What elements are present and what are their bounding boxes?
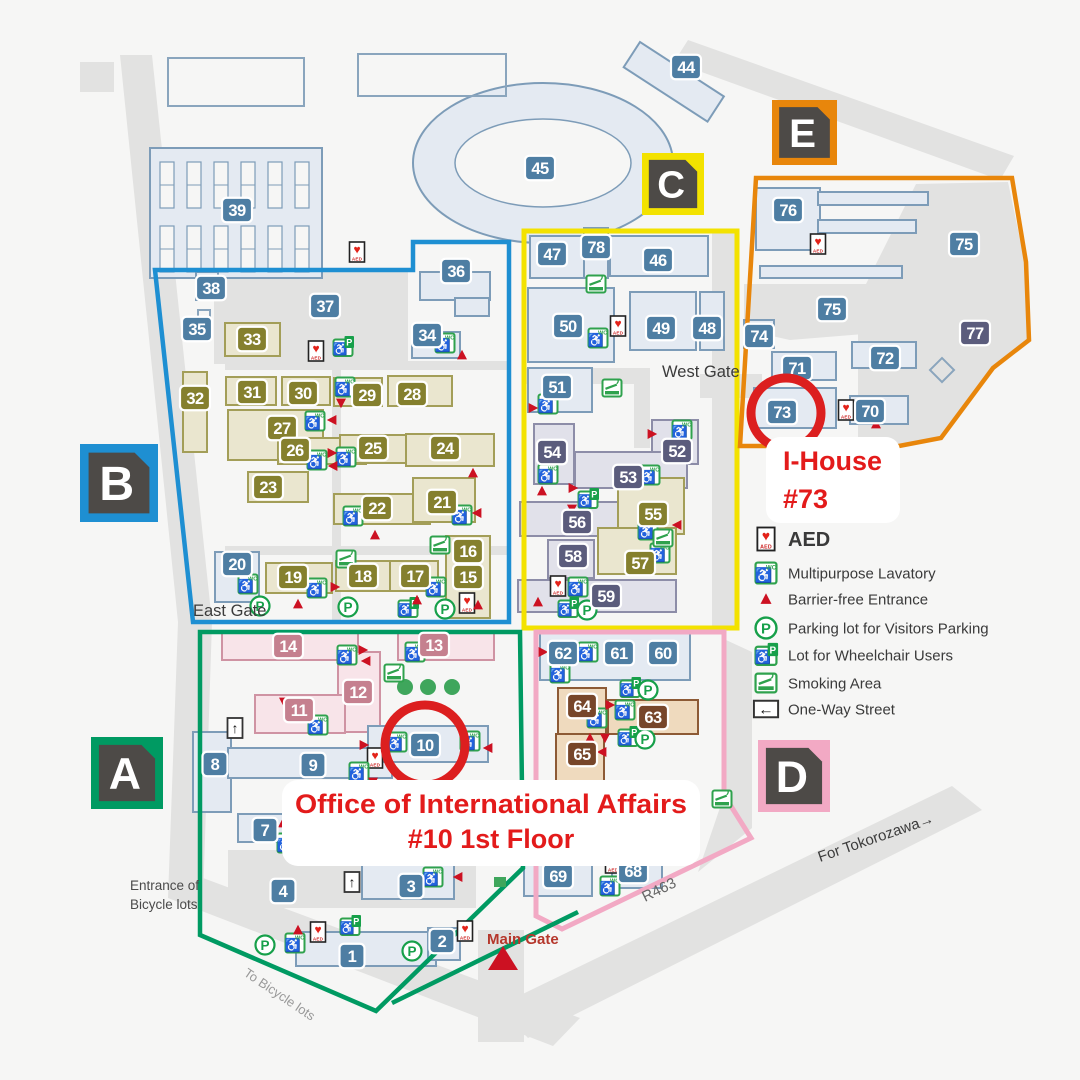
wc-text: WC [682, 423, 691, 429]
badge-number: 78 [587, 239, 605, 257]
badge-number: 50 [559, 318, 577, 336]
smoking-area-icon [385, 664, 404, 681]
badge-number: 56 [568, 514, 586, 532]
aed-heart: ♥ [554, 577, 561, 591]
badge-number: 31 [243, 384, 261, 402]
building-badge-47: 47 [537, 242, 567, 267]
smoke-bar [589, 287, 603, 290]
aed-icon: ♥AED [368, 748, 383, 768]
aed-heart: ♥ [312, 342, 319, 356]
wc-text: WC [433, 870, 442, 876]
zone-badge-b: B [80, 444, 158, 522]
building-badge-63: 63 [638, 705, 668, 730]
badge-number: 15 [459, 569, 477, 587]
building [818, 220, 916, 233]
visitors-parking-icon: P [636, 730, 655, 749]
smoking-area-icon [756, 673, 777, 692]
badge-number: 73 [773, 404, 791, 422]
smoke-bar [387, 676, 401, 679]
zone-badge-e: E [772, 100, 837, 165]
building-badge-44: 44 [671, 55, 701, 80]
wc-text: WC [353, 509, 362, 515]
building-badge-16: 16 [453, 539, 483, 564]
building-badge-49: 49 [646, 316, 676, 341]
building-badge-22: 22 [362, 496, 392, 521]
multipurpose-lavatory-icon: ♿WC [305, 412, 325, 431]
badge-number: 22 [368, 500, 386, 518]
building-badge-30: 30 [288, 381, 318, 406]
aed-text: AED [352, 256, 363, 261]
wheelchair-parking-icon: ♿P [754, 643, 778, 665]
badge-number: 17 [406, 568, 424, 586]
building-badge-77: 77 [960, 321, 990, 346]
aed-icon: ♥AED [611, 316, 626, 336]
wc-text: WC [548, 467, 557, 473]
aed-icon: ♥AED [309, 341, 324, 361]
badge-number: 11 [291, 702, 308, 720]
one-way-street-icon: ↑ [228, 718, 243, 738]
aed-text: AED [613, 330, 624, 335]
building-badge-78: 78 [581, 235, 611, 260]
multipurpose-lavatory-icon: ♿WC [578, 643, 598, 662]
building-badge-15: 15 [453, 565, 483, 590]
building-badge-19: 19 [278, 565, 308, 590]
badge-number: 59 [597, 588, 615, 606]
legend-label: One-Way Street [788, 701, 896, 718]
badge-number: 25 [364, 440, 382, 458]
building-badge-21: 21 [427, 490, 457, 515]
badge-number: 58 [564, 548, 582, 566]
multipurpose-lavatory-icon: ♿WC [600, 877, 620, 896]
zone-badge-letter: D [776, 753, 808, 802]
legend-label: Parking lot for Visitors Parking [788, 620, 989, 637]
building-badge-14: 14 [273, 634, 303, 659]
badge-number: 48 [698, 320, 716, 338]
badge-number: 3 [407, 878, 416, 896]
p-letter: P [643, 683, 652, 698]
multipurpose-lavatory-icon: ♿WC [285, 934, 305, 953]
badge-number: 75 [823, 301, 841, 319]
building-badge-20: 20 [222, 552, 252, 577]
building-badge-18: 18 [348, 564, 378, 589]
aed-text: AED [462, 607, 473, 612]
wheelchair-parking-icon: ♿P [578, 488, 599, 508]
building-badge-28: 28 [397, 382, 427, 407]
aed-text: AED [313, 936, 324, 941]
building-badge-46: 46 [643, 248, 673, 273]
multipurpose-lavatory-icon: ♿WC [307, 579, 327, 598]
smoke-bar [758, 686, 773, 690]
smoking-area-icon [431, 536, 450, 553]
building-badge-17: 17 [400, 564, 430, 589]
aed-text: AED [760, 545, 772, 551]
multipurpose-lavatory-icon: ♿WC [423, 868, 443, 887]
oneway-arrow: ↑ [232, 720, 239, 736]
aed-heart: ♥ [314, 923, 321, 937]
wc-text: WC [766, 565, 777, 571]
wc-text: WC [470, 734, 479, 740]
multipurpose-lavatory-icon: ♿WC [755, 563, 777, 585]
building-badge-23: 23 [253, 475, 283, 500]
badge-number: 75 [955, 236, 973, 254]
badge-number: 34 [418, 327, 437, 345]
building-badge-59: 59 [591, 584, 621, 609]
badge-number: 63 [644, 709, 662, 727]
multipurpose-lavatory-icon: ♿WC [349, 763, 369, 782]
annotation-text: #10 1st Floor [408, 824, 575, 854]
building-badge-64: 64 [567, 694, 597, 719]
multipurpose-lavatory-icon: ♿WC [568, 578, 588, 597]
zone-badge-letter: E [789, 111, 816, 156]
building-badge-11: 11 [284, 698, 314, 723]
badge-number: 29 [358, 387, 376, 405]
building-badge-65: 65 [567, 742, 597, 767]
wc-text: WC [598, 331, 607, 337]
building-badge-7: 7 [253, 818, 278, 843]
pw-p: P [353, 916, 359, 926]
badge-number: 1 [348, 948, 357, 966]
badge-number: 21 [433, 494, 451, 512]
badge-number: 44 [677, 59, 696, 77]
badge-number: 57 [631, 555, 649, 573]
badge-number: 38 [202, 280, 220, 298]
smoke-bar [605, 391, 619, 394]
pw-p: P [591, 489, 597, 499]
visitors-parking-icon: P [436, 600, 455, 619]
wheelchair-parking-icon: ♿P [340, 915, 361, 935]
badge-number: 10 [416, 737, 434, 755]
aed-text: AED [311, 355, 322, 360]
aed-heart: ♥ [461, 922, 468, 936]
pw-p: P [571, 598, 577, 608]
legend-label: AED [788, 529, 830, 551]
badge-number: 76 [779, 202, 797, 220]
badge-number: 69 [549, 868, 567, 886]
aed-text: AED [370, 762, 381, 767]
badge-number: 46 [649, 252, 667, 270]
map-label: Main Gate [487, 931, 559, 948]
badge-number: 30 [294, 385, 312, 403]
aed-text: AED [553, 590, 564, 595]
building-badge-57: 57 [625, 551, 655, 576]
aed-text: AED [813, 248, 824, 253]
one-way-street-icon: ↑ [345, 872, 360, 892]
aed-text: AED [460, 935, 471, 940]
building-badge-39: 39 [222, 198, 252, 223]
badge-number: 45 [531, 160, 549, 178]
one-way-street-icon: ← [754, 701, 778, 719]
wheelchair-parking-icon: ♿P [620, 677, 641, 697]
wc-text: WC [560, 666, 569, 672]
badge-number: 60 [654, 645, 672, 663]
badge-number: 20 [228, 556, 246, 574]
wc-text: WC [578, 580, 587, 586]
campus-map: ♥AED♥AED♥AED♥AED♥AED♥AED♥AED♥AED♥AED♥AED… [0, 0, 1080, 1080]
aed-heart: ♥ [463, 594, 470, 608]
wc-text: WC [317, 581, 326, 587]
multipurpose-lavatory-icon: ♿WC [672, 421, 692, 440]
badge-number: 28 [403, 386, 421, 404]
building-badge-62: 62 [548, 641, 578, 666]
multipurpose-lavatory-icon: ♿WC [337, 646, 357, 665]
badge-number: 74 [750, 328, 769, 346]
badge-number: 4 [279, 883, 289, 901]
oneway-arrow: ← [758, 701, 773, 718]
building-badge-37: 37 [310, 294, 340, 319]
badge-number: 24 [436, 440, 455, 458]
campus-map-page: ♥AED♥AED♥AED♥AED♥AED♥AED♥AED♥AED♥AED♥AED… [0, 0, 1080, 1080]
badge-number: 77 [966, 325, 984, 343]
map-label: Bicycle lots [130, 897, 198, 912]
building-badge-54: 54 [537, 440, 567, 465]
zone-badge-letter: B [99, 457, 134, 511]
building-badge-75: 75 [817, 297, 847, 322]
badge-number: 62 [554, 645, 572, 663]
badge-number: 36 [447, 263, 465, 281]
building-badge-52: 52 [662, 439, 692, 464]
legend-label: Smoking Area [788, 675, 882, 692]
building-badge-10: 10 [410, 733, 440, 758]
building-badge-45: 45 [525, 156, 555, 181]
wc-text: WC [295, 936, 304, 942]
annotation-text: #73 [783, 484, 828, 514]
building-badge-51: 51 [542, 375, 572, 400]
building-badge-61: 61 [604, 641, 634, 666]
aed-icon: ♥AED [350, 242, 365, 262]
badge-number: 37 [316, 298, 334, 316]
building-badge-69: 69 [543, 864, 573, 889]
aed-heart: ♥ [614, 317, 621, 331]
building-badge-4: 4 [271, 879, 296, 904]
building-badge-34: 34 [412, 323, 442, 348]
badge-number: 14 [279, 638, 298, 656]
badge-number: 27 [273, 420, 291, 438]
wc-text: WC [436, 580, 445, 586]
building-badge-73: 73 [767, 400, 797, 425]
badge-number: 12 [349, 684, 367, 702]
building-badge-8: 8 [203, 752, 228, 777]
building-badge-56: 56 [562, 510, 592, 535]
badge-number: 51 [548, 379, 566, 397]
multipurpose-lavatory-icon: ♿WC [588, 329, 608, 348]
badge-number: 54 [543, 444, 562, 462]
wc-text: WC [317, 453, 326, 459]
building-badge-27: 27 [267, 416, 297, 441]
badge-number: 7 [261, 822, 270, 840]
building [455, 298, 489, 316]
wc-text: WC [318, 718, 327, 724]
aed-icon: ♥AED [460, 593, 475, 613]
multipurpose-lavatory-icon: ♿WC [615, 701, 635, 720]
building-badge-26: 26 [280, 438, 310, 463]
multipurpose-lavatory-icon: ♿WC [336, 448, 356, 467]
building-badge-1: 1 [340, 944, 365, 969]
badge-number: 53 [619, 469, 637, 487]
building-badge-25: 25 [358, 436, 388, 461]
badge-number: 72 [876, 350, 894, 368]
badge-number: 64 [573, 698, 592, 716]
p-letter: P [440, 602, 449, 617]
zone-badge-letter: A [109, 750, 141, 799]
wc-text: WC [588, 645, 597, 651]
visitors-parking-icon: P [639, 681, 658, 700]
aed-icon: ♥AED [811, 234, 826, 254]
wc-text: WC [346, 450, 355, 456]
aed-heart: ♥ [762, 529, 770, 544]
badge-number: 2 [438, 933, 447, 951]
aed-icon: ♥AED [839, 400, 854, 420]
aed-icon: ♥AED [311, 922, 326, 942]
building-badge-2: 2 [430, 929, 455, 954]
wc-text: WC [397, 735, 406, 741]
building-badge-50: 50 [553, 314, 583, 339]
badge-number: 19 [284, 569, 302, 587]
wheelchair-parking-icon: ♿P [333, 336, 354, 356]
wc-text: WC [248, 577, 257, 583]
aed-icon: ♥AED [757, 528, 774, 551]
building-badge-72: 72 [870, 346, 900, 371]
map-label: West Gate [662, 363, 740, 381]
aed-heart: ♥ [814, 235, 821, 249]
building-badge-76: 76 [773, 198, 803, 223]
badge-number: 52 [668, 443, 686, 461]
badge-number: 26 [286, 442, 304, 460]
p-letter: P [761, 621, 771, 637]
multipurpose-lavatory-icon: ♿WC [538, 465, 558, 484]
building-badge-74: 74 [744, 324, 774, 349]
building-badge-48: 48 [692, 316, 722, 341]
badge-number: 35 [188, 321, 206, 339]
legend-label: Multipurpose Lavatory [788, 565, 936, 582]
building-badge-75: 75 [949, 232, 979, 257]
tree [420, 679, 436, 695]
p-letter: P [640, 732, 649, 747]
p-letter: P [260, 938, 269, 953]
badge-number: 49 [652, 320, 670, 338]
wc-text: WC [315, 414, 324, 420]
building [818, 192, 928, 205]
aed-heart: ♥ [842, 401, 849, 415]
badge-number: 23 [259, 479, 277, 497]
building-badge-31: 31 [237, 380, 267, 405]
building-badge-9: 9 [301, 753, 326, 778]
map-label: East Gate [193, 602, 266, 620]
building [760, 266, 902, 278]
smoking-area-icon [713, 790, 732, 807]
annotation-text: Office of International Affairs [295, 789, 687, 819]
annotation-callout: Office of International Affairs#10 1st F… [282, 780, 700, 866]
badge-number: 9 [309, 757, 318, 775]
building-badge-38: 38 [196, 276, 226, 301]
smoking-area-icon [603, 379, 622, 396]
building-badge-53: 53 [613, 465, 643, 490]
tree [494, 877, 506, 887]
aed-icon: ♥AED [458, 921, 473, 941]
aed-text: AED [841, 414, 852, 419]
badge-number: 39 [228, 202, 246, 220]
aed-icon: ♥AED [551, 576, 566, 596]
building-badge-33: 33 [237, 327, 267, 352]
building-badge-36: 36 [441, 259, 471, 284]
visitors-parking-icon: P [339, 598, 358, 617]
badge-number: 33 [243, 331, 261, 349]
badge-number: 18 [354, 568, 372, 586]
badge-number: 32 [186, 390, 204, 408]
building-badge-13: 13 [419, 633, 449, 658]
wc-text: WC [462, 508, 471, 514]
visitors-parking-icon: P [756, 618, 777, 639]
badge-number: 47 [543, 246, 561, 264]
pw-p: P [346, 337, 352, 347]
aed-heart: ♥ [353, 243, 360, 257]
wc-text: WC [625, 703, 634, 709]
badge-number: 70 [861, 403, 879, 421]
wc-text: WC [359, 765, 368, 771]
wheelchair-parking-icon: ♿P [558, 597, 579, 617]
badge-number: 13 [425, 637, 443, 655]
oneway-arrow: ↑ [349, 874, 356, 890]
zone-badge-d: D [758, 740, 830, 812]
building-badge-3: 3 [399, 874, 424, 899]
smoke-bar [433, 548, 447, 551]
building-badge-60: 60 [648, 641, 678, 666]
road [80, 62, 114, 92]
visitors-parking-icon: P [256, 936, 275, 955]
zone-badge-a: A [91, 737, 163, 809]
badge-number: 16 [459, 543, 477, 561]
wc-text: WC [347, 648, 356, 654]
annotation-text: I-House [783, 446, 882, 476]
p-letter: P [407, 944, 416, 959]
smoking-area-icon [587, 275, 606, 292]
badge-number: 8 [211, 756, 220, 774]
building-badge-35: 35 [182, 317, 212, 342]
smoke-bar [715, 802, 729, 805]
smoke-bar [656, 541, 670, 544]
badge-number: 61 [610, 645, 628, 663]
pw-p: P [770, 645, 777, 656]
wc-text: WC [445, 336, 454, 342]
tree [444, 679, 460, 695]
wc-text: WC [650, 468, 659, 474]
zone-badge-c: C [642, 153, 704, 215]
zone-badge-letter: C [657, 164, 685, 207]
building-badge-24: 24 [430, 436, 460, 461]
aed-heart: ♥ [371, 749, 378, 763]
map-label: Entrance of [130, 878, 199, 893]
building-badge-12: 12 [343, 680, 373, 705]
building-badge-58: 58 [558, 544, 588, 569]
visitors-parking-icon: P [403, 942, 422, 961]
legend-label: Lot for Wheelchair Users [788, 647, 953, 664]
road [225, 361, 508, 370]
p-letter: P [343, 600, 352, 615]
building-badge-32: 32 [180, 386, 210, 411]
wc-text: WC [597, 711, 606, 717]
building-badge-29: 29 [352, 383, 382, 408]
legend-label: Barrier-free Entrance [788, 591, 928, 608]
badge-number: 65 [573, 746, 591, 764]
multipurpose-lavatory-icon: ♿WC [343, 507, 363, 526]
badge-number: 55 [644, 506, 662, 524]
building-badge-70: 70 [855, 399, 885, 424]
smoking-area-icon [654, 529, 673, 546]
building-badge-55: 55 [638, 502, 668, 527]
annotation-callout: I-House#73 [766, 437, 900, 523]
building [183, 372, 207, 452]
